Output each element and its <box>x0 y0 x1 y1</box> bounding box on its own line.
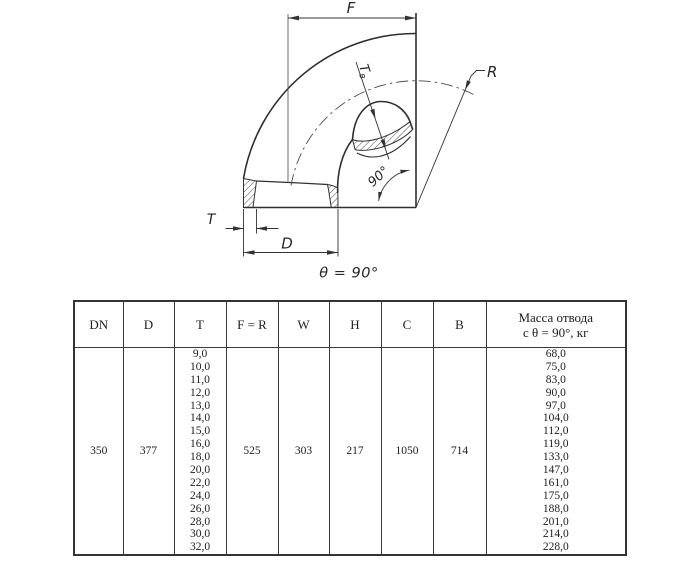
t-value-line: 28,0 <box>175 516 226 529</box>
label-f: F <box>347 0 356 17</box>
figure-caption: θ = 90° <box>319 266 378 282</box>
mass-value-line: 133,0 <box>487 451 626 464</box>
radius-leader-line <box>416 71 485 208</box>
mass-value-line: 68,0 <box>487 348 626 361</box>
t-value-line: 13,0 <box>175 400 226 413</box>
cell-dn: 350 <box>74 348 123 556</box>
leader-t-wall-arrow-1 <box>370 109 375 119</box>
header-row: DN D T F = R W H C B Масса отвода с θ = … <box>74 301 626 348</box>
cell-f-r: 525 <box>226 348 278 556</box>
header-c: C <box>381 301 433 348</box>
label-angle: 90° <box>365 164 392 191</box>
dim-f-arrow-right <box>405 16 416 21</box>
header-f-r: F = R <box>226 301 278 348</box>
mass-value-line: 97,0 <box>487 400 626 413</box>
dim-d-arrow-left <box>244 250 255 254</box>
t-value-line: 32,0 <box>175 541 226 554</box>
t-value-line: 15,0 <box>175 425 226 438</box>
mass-value-line: 214,0 <box>487 528 626 541</box>
mass-value-line: 175,0 <box>487 490 626 503</box>
dim-d-arrow-right <box>327 250 338 254</box>
label-r: R <box>487 63 497 81</box>
mass-value-line: 112,0 <box>487 425 626 438</box>
mass-value-line: 90,0 <box>487 387 626 400</box>
cell-c: 1050 <box>381 348 433 556</box>
t-value-line: 22,0 <box>175 477 226 490</box>
t-value-line: 18,0 <box>175 451 226 464</box>
outer-arc <box>244 33 417 178</box>
hatch-left-wall-section <box>244 179 257 208</box>
mass-value-line: 104,0 <box>487 412 626 425</box>
bore-silhouette <box>338 140 353 194</box>
t-value-line: 10,0 <box>175 361 226 374</box>
mass-value-line: 147,0 <box>487 464 626 477</box>
mass-value-line: 201,0 <box>487 516 626 529</box>
mass-value-line: 83,0 <box>487 374 626 387</box>
header-h: H <box>329 301 381 348</box>
t-value-line: 12,0 <box>175 387 226 400</box>
mass-value-line: 119,0 <box>487 438 626 451</box>
cell-w: 303 <box>278 348 329 556</box>
table-row: 350 377 9,0 10,0 11,0 12,0 13,0 14,0 15,… <box>74 348 626 556</box>
dimensions-table: DN D T F = R W H C B Масса отвода с θ = … <box>73 300 627 556</box>
catalog-page: F T D Tв R 90° θ = 90° <box>0 0 700 573</box>
t-value-line: 24,0 <box>175 490 226 503</box>
dim-t-arrow-right <box>257 226 268 230</box>
cell-t-values: 9,0 10,0 11,0 12,0 13,0 14,0 15,0 16,0 1… <box>174 348 226 556</box>
mass-value-line: 188,0 <box>487 503 626 516</box>
dim-f-arrow-left <box>288 16 299 21</box>
header-t: T <box>174 301 226 348</box>
header-w: W <box>278 301 329 348</box>
header-dn: DN <box>74 301 123 348</box>
t-value-line: 11,0 <box>175 374 226 387</box>
cell-b: 714 <box>433 348 486 556</box>
label-d: D <box>281 235 293 253</box>
t-value-line: 14,0 <box>175 412 226 425</box>
mass-value-line: 75,0 <box>487 361 626 374</box>
mass-value-line: 228,0 <box>487 541 626 554</box>
mass-value-line: 161,0 <box>487 477 626 490</box>
hatch-top-wall-section <box>353 122 413 151</box>
header-b: B <box>433 301 486 348</box>
elbow-diagram: F T D Tв R 90° θ = 90° <box>0 0 700 295</box>
angle-arrow-top <box>400 170 409 174</box>
t-value-line: 26,0 <box>175 503 226 516</box>
cell-d: 377 <box>123 348 174 556</box>
header-mass: Масса отвода с θ = 90°, кг <box>486 301 626 348</box>
cell-mass-values: 68,0 75,0 83,0 90,0 97,0 104,0 112,0 119… <box>486 348 626 556</box>
t-value-line: 20,0 <box>175 464 226 477</box>
label-t: T <box>207 212 217 228</box>
angle-arrow-bottom <box>378 192 382 201</box>
header-d: D <box>123 301 174 348</box>
hatch-right-wall-section <box>328 185 339 208</box>
t-value-line: 9,0 <box>175 348 226 361</box>
radius-arrow <box>465 80 471 90</box>
cell-h: 217 <box>329 348 381 556</box>
t-value-line: 16,0 <box>175 438 226 451</box>
dim-t-arrow-left <box>233 226 244 230</box>
t-value-line: 30,0 <box>175 528 226 541</box>
